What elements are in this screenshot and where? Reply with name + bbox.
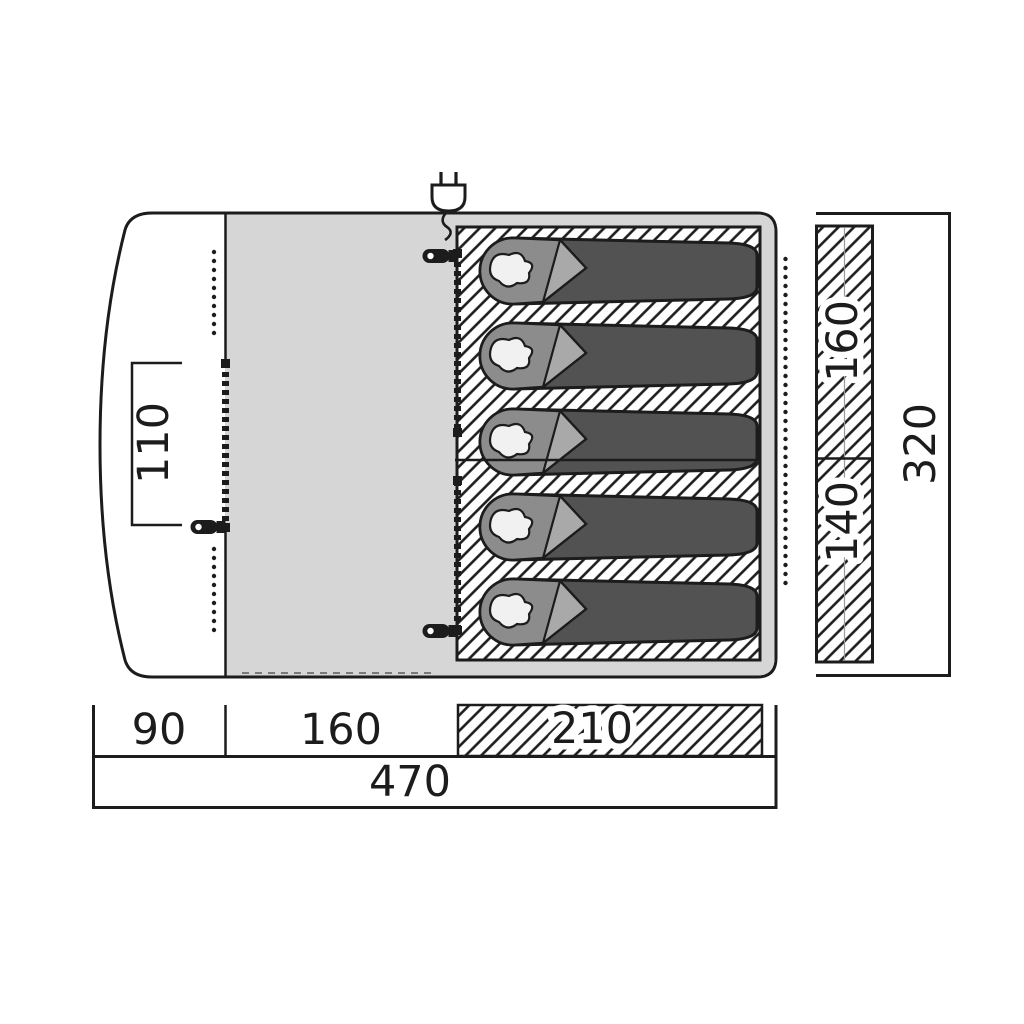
door-width-label: 110 bbox=[129, 402, 179, 484]
living-depth-label: 160 bbox=[300, 705, 382, 755]
zipper-pull-icon bbox=[423, 249, 458, 263]
sleeping-bag bbox=[480, 494, 757, 560]
bedroom-width-a-label: 160 bbox=[818, 300, 868, 382]
sleeping-bag bbox=[480, 238, 757, 304]
width-dimension-bar: 160 140 bbox=[817, 226, 873, 662]
zipper-pull-icon bbox=[191, 520, 226, 534]
sleeping-bags-group bbox=[480, 238, 757, 645]
zipper-pull-icon bbox=[423, 624, 458, 638]
total-length-label: 470 bbox=[369, 757, 451, 807]
sleeping-bag bbox=[480, 323, 757, 389]
sleeping-bag bbox=[480, 409, 757, 475]
tent-floorplan-diagram: 110 160 140 320 90 160 210 470 bbox=[0, 0, 1024, 1024]
bedroom-width-b-label: 140 bbox=[818, 481, 868, 563]
floorplan-canvas: 110 160 140 320 90 160 210 470 bbox=[0, 0, 1024, 1024]
total-width-label: 320 bbox=[896, 403, 946, 485]
bedroom-depth-label: 210 bbox=[551, 704, 633, 754]
length-dimension-scale: 90 160 210 470 bbox=[92, 704, 778, 808]
porch-depth-label: 90 bbox=[132, 705, 187, 755]
sleeping-bag bbox=[480, 579, 757, 645]
